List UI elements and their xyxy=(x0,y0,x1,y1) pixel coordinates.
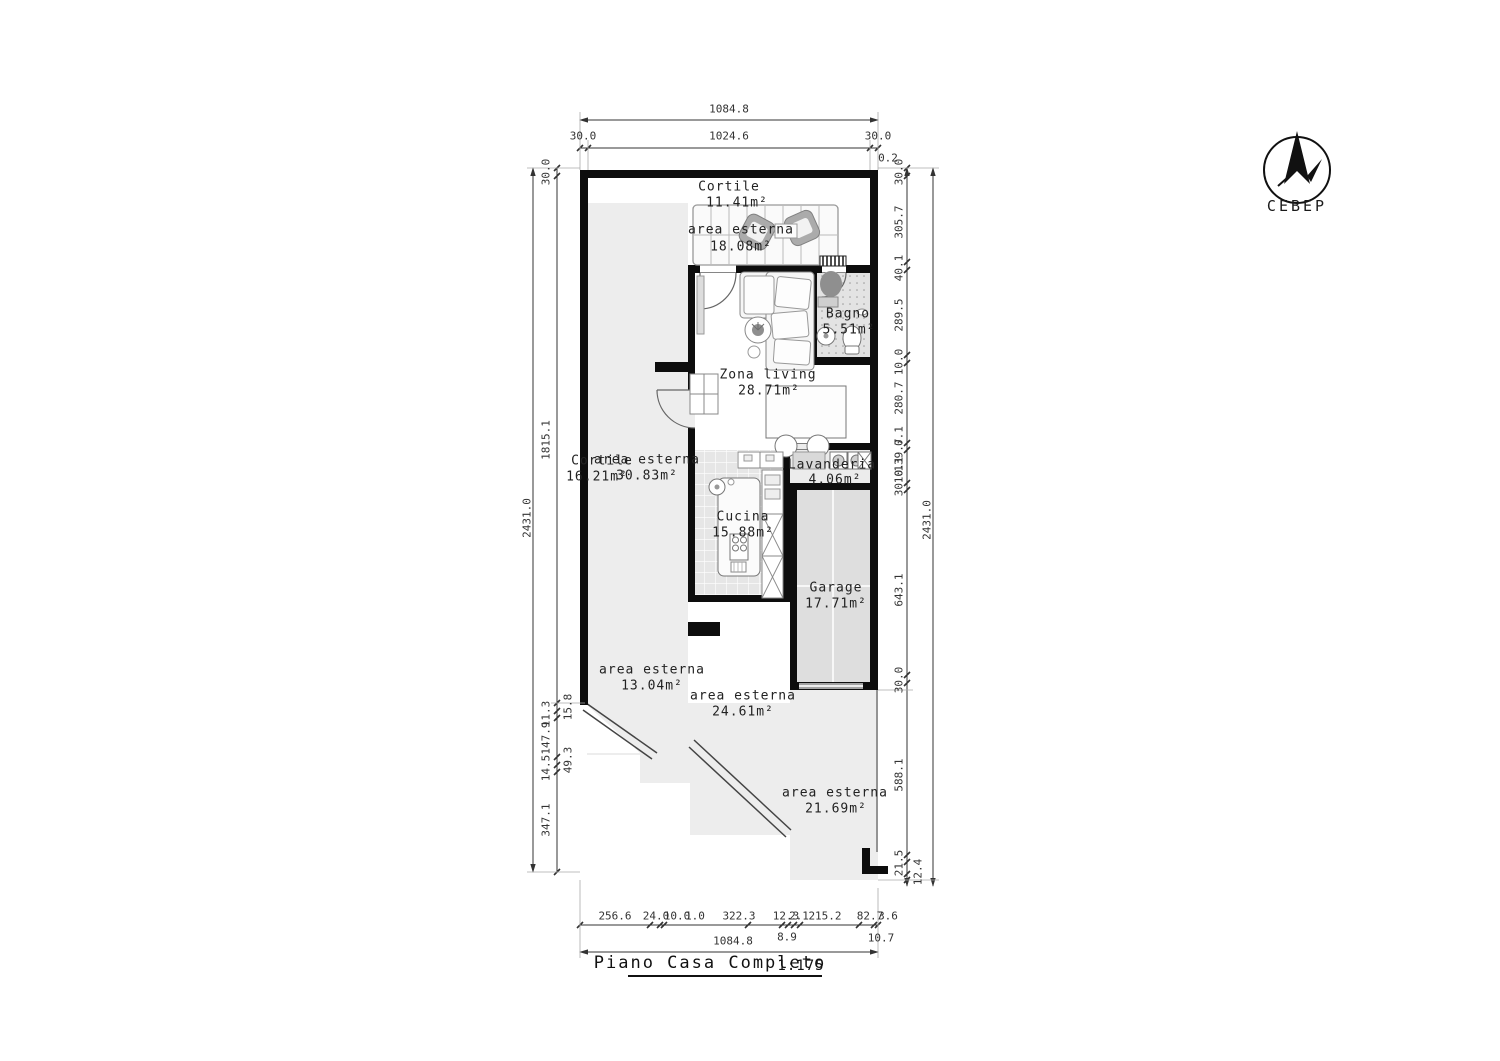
room-area-area-esterna-21: 21.69m² xyxy=(805,802,867,817)
room-area-bagno: 5.51m² xyxy=(823,323,876,338)
dim-top-30-left: 30.0 xyxy=(570,130,597,143)
floor-plan-page: Cortile 11.41m² area esterna 18.08m² Bag… xyxy=(0,0,1500,1061)
dim-bottom-256-6: 256.6 xyxy=(598,910,631,923)
dim-top-total: 1084.8 xyxy=(709,103,749,116)
dim-top-1024: 1024.6 xyxy=(709,130,749,143)
dim-right-outer: 2431.0 xyxy=(921,500,934,540)
compass-north-label: СЕВЕР xyxy=(1267,197,1327,215)
room-area-area-esterna-13: 13.04m² xyxy=(621,679,683,694)
room-area-area-esterna-left: 30.83m² xyxy=(616,469,678,484)
dim-top-30-right: 30.0 xyxy=(865,130,892,143)
dim-bottom-10-7: 10.7 xyxy=(868,932,895,945)
room-label-zona-living: Zona living xyxy=(719,368,816,383)
dim-right-12-4: 12.4 xyxy=(912,859,925,886)
room-label-area-esterna-24: area esterna xyxy=(690,689,796,704)
room-area-zona-living: 28.71m² xyxy=(738,384,800,399)
dim-bottom-215-2: 215.2 xyxy=(808,910,841,923)
dim-bottom-1-0: 1.0 xyxy=(685,910,705,923)
room-label-lavanderia: Lavanderia xyxy=(788,458,876,473)
dim-left-1815: 1815.1 xyxy=(540,420,553,460)
dim-right-289-5: 289.5 xyxy=(893,298,906,331)
room-area-lavanderia: 4.06m² xyxy=(809,473,862,488)
dim-left-15-8: 15.8 xyxy=(562,694,575,721)
dim-left-outer: 2431.0 xyxy=(521,498,534,538)
dim-right-30-b: 30.0 xyxy=(893,470,906,497)
dim-left-347-1: 347.1 xyxy=(540,803,553,836)
room-label-garage: Garage xyxy=(810,581,863,596)
dim-right-280-7: 280.7 xyxy=(893,381,906,414)
dim-right-588-1: 588.1 xyxy=(893,758,906,791)
dim-lines-left xyxy=(527,165,585,875)
dim-left-147-9: 147.9 xyxy=(540,721,553,754)
dim-right-30-a: 30.0 xyxy=(893,159,906,186)
dim-right-30-c: 30.0 xyxy=(893,667,906,694)
dim-right-305-7: 305.7 xyxy=(893,205,906,238)
compass-icon xyxy=(1264,131,1330,203)
room-label-area-esterna-left: area esterna xyxy=(594,453,700,468)
room-area-area-esterna-top: 18.08m² xyxy=(710,240,772,255)
dim-bottom-total: 1084.8 xyxy=(713,935,753,948)
dim-right-643-1: 643.1 xyxy=(893,573,906,606)
room-area-cucina: 15.88m² xyxy=(712,526,774,541)
room-area-cortile-top: 11.41m² xyxy=(706,196,768,211)
dim-bottom-322-3: 322.3 xyxy=(722,910,755,923)
room-label-cucina: Cucina xyxy=(717,510,770,525)
dim-right-21-5: 21.5 xyxy=(893,850,906,877)
dim-left-30: 30.0 xyxy=(540,159,553,186)
plan-scale: 1:175 xyxy=(777,958,824,974)
dim-left-14-5: 14.5 xyxy=(540,755,553,782)
room-label-cortile-top: Cortile xyxy=(698,180,760,195)
dim-left-49-3: 49.3 xyxy=(562,747,575,774)
plant xyxy=(820,271,842,297)
dim-bottom-3-6: 3.6 xyxy=(878,910,898,923)
dim-right-10-0: 10.0 xyxy=(893,349,906,376)
room-label-area-esterna-top: area esterna xyxy=(688,223,794,238)
dim-right-40-1: 40.1 xyxy=(893,255,906,282)
tv-cabinet xyxy=(697,276,704,334)
room-label-area-esterna-21: area esterna xyxy=(782,786,888,801)
dim-bottom-8-9: 8.9 xyxy=(777,931,797,944)
dim-bottom-2-1: 2.1 xyxy=(789,910,809,923)
room-area-garage: 17.71m² xyxy=(805,597,867,612)
room-area-area-esterna-24: 24.61m² xyxy=(712,705,774,720)
room-label-area-esterna-13: area esterna xyxy=(599,663,705,678)
room-label-bagno: Bagno xyxy=(826,307,870,322)
